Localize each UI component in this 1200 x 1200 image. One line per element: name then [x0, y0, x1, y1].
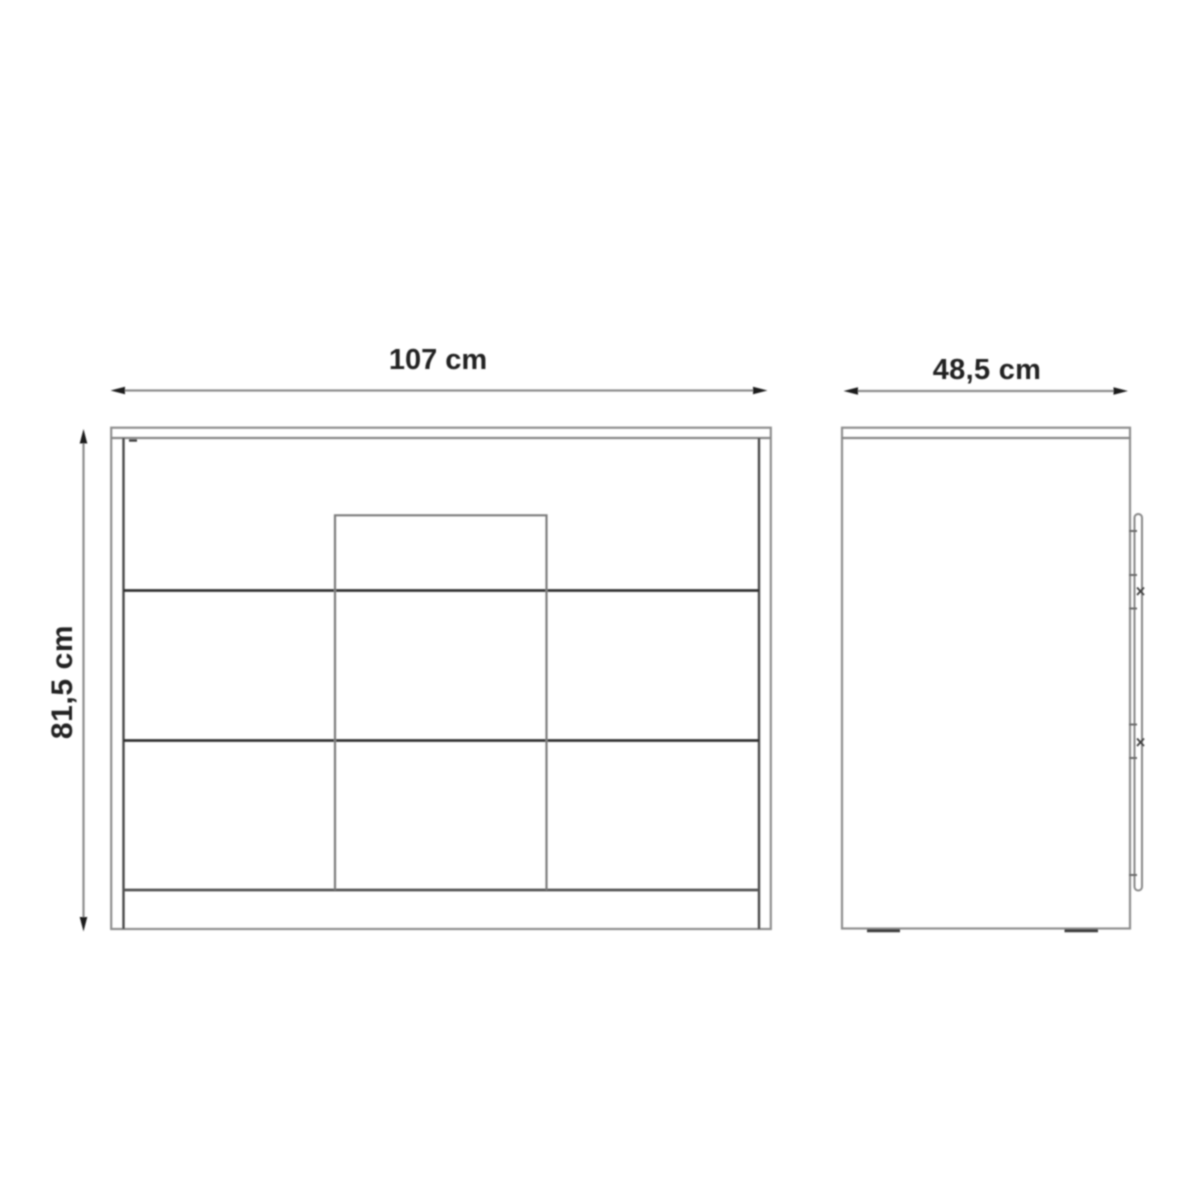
svg-text:48,5 cm: 48,5 cm	[933, 354, 1042, 386]
svg-text:81,5 cm: 81,5 cm	[46, 625, 79, 739]
svg-text:107 cm: 107 cm	[389, 344, 487, 376]
